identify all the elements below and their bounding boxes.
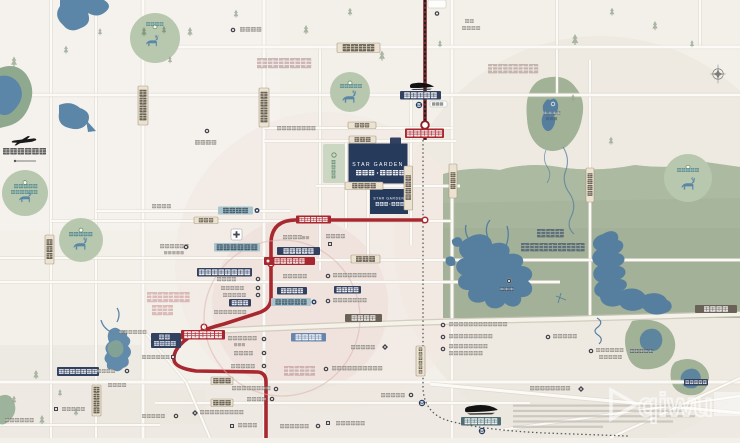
- svg-text:STAR GARDEN: STAR GARDEN: [373, 197, 404, 201]
- svg-text:STAR GARDEN: STAR GARDEN: [352, 162, 403, 168]
- svg-text:B: B: [480, 429, 484, 435]
- svg-text:qiwu: qiwu: [638, 386, 713, 423]
- svg-text:B: B: [417, 103, 421, 109]
- svg-text:B: B: [420, 401, 424, 407]
